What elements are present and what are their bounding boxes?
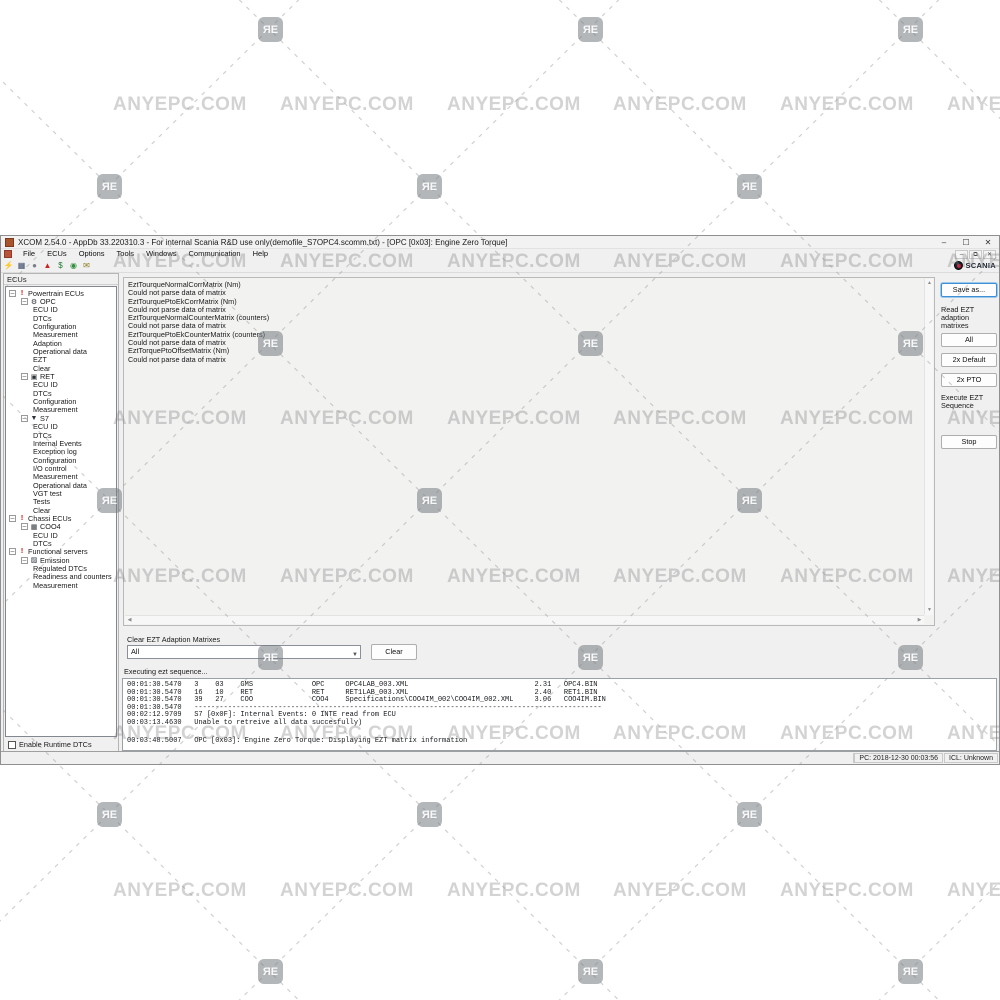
toolbar: ⚡▦●▲$◉✉ SCANIA <box>1 259 999 273</box>
window-title: XCOM 2.54.0 - AppDb 33.220310.3 - For in… <box>18 238 507 247</box>
mdi-window-controls: – ⧉ ✕ <box>954 250 999 259</box>
ecus-panel: ECUs –!Powertrain ECUs–⚙OPCECU IDDTCsCon… <box>3 273 119 753</box>
execute-ezt-label: Execute EZT Sequence <box>941 394 983 410</box>
watermark-badge-icon: ЯЕ <box>97 174 122 199</box>
stop-button[interactable]: Stop <box>941 435 997 449</box>
matrix-status-text: EztTourqueNormalCorrMatrix (Nm) Could no… <box>128 281 269 364</box>
watermark-badge-icon: ЯЕ <box>258 959 283 984</box>
runtime-dtcs-row: Enable Runtime DTCs <box>6 739 92 750</box>
clear-button[interactable]: Clear <box>371 644 417 660</box>
tree-item-ezt[interactable]: EZT <box>6 356 116 364</box>
tree-item-chassi-ecus[interactable]: –!Chassi ECUs <box>6 514 116 522</box>
read-all-button[interactable]: All <box>941 333 997 347</box>
maximize-button[interactable]: ☐ <box>955 236 977 249</box>
statusbar-pc-time: PC: 2018-12-30 00:03:56 <box>854 753 943 763</box>
print-icon[interactable]: ● <box>29 260 40 271</box>
mdi-document-icon[interactable] <box>4 250 12 258</box>
horizontal-scrollbar[interactable]: ◀ ▶ <box>125 615 924 624</box>
mdi-close-button[interactable]: ✕ <box>983 250 996 259</box>
app-icon <box>5 238 14 247</box>
watermark-text: ANYEPC.COM <box>613 94 747 116</box>
minimize-button[interactable]: – <box>933 236 955 249</box>
scania-logo-text: SCANIA <box>965 261 996 270</box>
read-ezt-label: Read EZT adaption matrixes <box>941 306 974 330</box>
mail-icon[interactable]: ✉ <box>81 260 92 271</box>
tree-item-powertrain-ecus[interactable]: –!Powertrain ECUs <box>6 289 116 297</box>
warning-icon[interactable]: ▲ <box>42 260 53 271</box>
expander-minus-icon[interactable]: – <box>9 548 16 555</box>
tree-item-label: Powertrain ECUs <box>28 289 84 298</box>
read-2x-default-button[interactable]: 2x Default <box>941 353 997 367</box>
chevron-down-icon: ▼ <box>352 649 358 661</box>
exclamation-icon: ! <box>18 515 26 522</box>
clear-ezt-label: Clear EZT Adaption Matrixes <box>127 635 220 644</box>
watermark-badge-icon: ЯЕ <box>578 17 603 42</box>
watermark-text: ANYEPC.COM <box>113 880 247 902</box>
tree-item-measurement[interactable]: Measurement <box>6 581 116 589</box>
gear-icon: ⚙ <box>30 298 38 306</box>
tree-item-opc[interactable]: –⚙OPC <box>6 297 116 305</box>
screenshot-stage: XCOM 2.54.0 - AppDb 33.220310.3 - For in… <box>0 0 1000 1000</box>
close-button[interactable]: ✕ <box>977 236 999 249</box>
watermark-text: ANYEPC.COM <box>947 880 1000 902</box>
vertical-scrollbar[interactable]: ▲ ▼ <box>924 279 933 615</box>
expander-minus-icon[interactable]: – <box>9 515 16 522</box>
connect-icon[interactable]: ⚡ <box>3 260 14 271</box>
watermark-text: ANYEPC.COM <box>947 94 1000 116</box>
menu-item-ecus[interactable]: ECUs <box>41 249 73 259</box>
tree-item-ecu-id[interactable]: ECU ID <box>6 381 116 389</box>
watermark-badge-icon: ЯЕ <box>737 174 762 199</box>
log-lines: 00:01:30.5470 3 03 GMS OPC OPC4LAB_003.X… <box>123 679 996 728</box>
ezt-matrix-panel: EztTourqueNormalCorrMatrix (Nm) Could no… <box>123 277 935 626</box>
tree-item-measurement[interactable]: Measurement <box>6 406 116 414</box>
executing-sequence-label: Executing ezt sequence... <box>124 667 208 676</box>
menu-items: FileECUsOptionsToolsWindowsCommunication… <box>17 249 274 259</box>
help-icon[interactable]: ◉ <box>68 260 79 271</box>
enable-runtime-dtcs-checkbox[interactable] <box>8 741 16 749</box>
expander-minus-icon[interactable]: – <box>21 415 28 422</box>
emission-icon: ▨ <box>30 556 38 564</box>
scroll-left-icon[interactable]: ◀ <box>125 616 134 625</box>
menu-item-tools[interactable]: Tools <box>111 249 141 259</box>
scania-logo-icon <box>954 261 963 270</box>
menu-item-help[interactable]: Help <box>247 249 274 259</box>
expander-minus-icon[interactable]: – <box>21 557 28 564</box>
log-panel[interactable]: 00:01:30.5470 3 03 GMS OPC OPC4LAB_003.X… <box>122 678 997 751</box>
enable-runtime-dtcs-label: Enable Runtime DTCs <box>19 740 92 749</box>
dollar-icon[interactable]: $ <box>55 260 66 271</box>
clear-matrix-dropdown[interactable]: All ▼ <box>127 645 361 659</box>
watermark-text: ANYEPC.COM <box>613 880 747 902</box>
xcom-app-window: XCOM 2.54.0 - AppDb 33.220310.3 - For in… <box>0 235 1000 765</box>
watermark-text: ANYEPC.COM <box>280 94 414 116</box>
watermark-text: ANYEPC.COM <box>113 94 247 116</box>
watermark-badge-icon: ЯЕ <box>97 802 122 827</box>
watermark-badge-icon: ЯЕ <box>898 959 923 984</box>
watermark-text: ANYEPC.COM <box>447 880 581 902</box>
expander-minus-icon[interactable]: – <box>21 373 28 380</box>
dock-area: ECUs –!Powertrain ECUs–⚙OPCECU IDDTCsCon… <box>1 273 999 753</box>
statusbar-icl: ICL: Unknown <box>944 753 998 763</box>
watermark-badge-icon: ЯЕ <box>578 959 603 984</box>
expander-minus-icon[interactable]: – <box>21 298 28 305</box>
menubar: FileECUsOptionsToolsWindowsCommunication… <box>1 249 999 259</box>
tree-item-label: Measurement <box>33 581 78 590</box>
clear-matrix-dropdown-value: All <box>131 647 139 656</box>
statusbar: PC: 2018-12-30 00:03:56 ICL: Unknown <box>1 751 999 764</box>
watermark-badge-icon: ЯЕ <box>417 174 442 199</box>
log-selected-line: 00:03:48.5007 OPC [0x03]: Engine Zero To… <box>127 737 467 745</box>
tree-item-vgt-test[interactable]: VGT test <box>6 489 116 497</box>
scroll-right-icon[interactable]: ▶ <box>915 616 924 625</box>
mdi-restore-button[interactable]: ⧉ <box>969 250 982 259</box>
tree-item-s7[interactable]: –▼S7 <box>6 414 116 422</box>
save-as-button[interactable]: Save as... <box>941 283 997 297</box>
ecus-panel-header: ECUs <box>4 274 118 285</box>
scroll-up-icon[interactable]: ▲ <box>925 279 934 288</box>
menu-item-windows[interactable]: Windows <box>140 249 182 259</box>
main-client-area: EztTourqueNormalCorrMatrix (Nm) Could no… <box>121 273 999 753</box>
coo4-icon: ▦ <box>30 523 38 531</box>
watermark-badge-icon: ЯЕ <box>417 802 442 827</box>
window-controls: – ☐ ✕ <box>933 236 999 249</box>
tree-item-ecu-id[interactable]: ECU ID <box>6 531 116 539</box>
titlebar: XCOM 2.54.0 - AppDb 33.220310.3 - For in… <box>1 236 999 249</box>
tree-item-coo4[interactable]: –▦COO4 <box>6 523 116 531</box>
watermark-text: ANYEPC.COM <box>447 94 581 116</box>
tree-item-ecu-id[interactable]: ECU ID <box>6 423 116 431</box>
statusbar-fill <box>3 753 854 763</box>
retarder-icon: ▣ <box>30 373 38 381</box>
scania-brand: SCANIA <box>954 261 999 270</box>
menu-item-options[interactable]: Options <box>73 249 111 259</box>
watermark-text: ANYEPC.COM <box>780 94 914 116</box>
ecu-tree-box: –!Powertrain ECUs–⚙OPCECU IDDTCsConfigur… <box>5 286 117 737</box>
menu-item-communication[interactable]: Communication <box>183 249 247 259</box>
expander-minus-icon[interactable]: – <box>9 290 16 297</box>
exclamation-icon: ! <box>18 290 26 297</box>
watermark-text: ANYEPC.COM <box>280 880 414 902</box>
read-2x-pto-button[interactable]: 2x PTO <box>941 373 997 387</box>
watermark-badge-icon: ЯЕ <box>737 802 762 827</box>
exclamation-icon: ! <box>18 548 26 555</box>
tree-item-operational-data[interactable]: Operational data <box>6 347 116 355</box>
toolbar-icons: ⚡▦●▲$◉✉ <box>1 260 92 271</box>
s7-icon: ▼ <box>30 415 38 422</box>
menu-item-file[interactable]: File <box>17 249 41 259</box>
watermark-badge-icon: ЯЕ <box>258 17 283 42</box>
scroll-down-icon[interactable]: ▼ <box>925 606 934 615</box>
ecu-tree: –!Powertrain ECUs–⚙OPCECU IDDTCsConfigur… <box>6 287 116 589</box>
mdi-minimize-button[interactable]: – <box>955 250 968 259</box>
expander-minus-icon[interactable]: – <box>21 523 28 530</box>
watermark-text: ANYEPC.COM <box>780 880 914 902</box>
save-icon[interactable]: ▦ <box>16 260 27 271</box>
tree-item-tests[interactable]: Tests <box>6 498 116 506</box>
tree-item-clear[interactable]: Clear <box>6 364 116 372</box>
watermark-badge-icon: ЯЕ <box>898 17 923 42</box>
tree-item-ret[interactable]: –▣RET <box>6 372 116 380</box>
tree-item-ecu-id[interactable]: ECU ID <box>6 306 116 314</box>
